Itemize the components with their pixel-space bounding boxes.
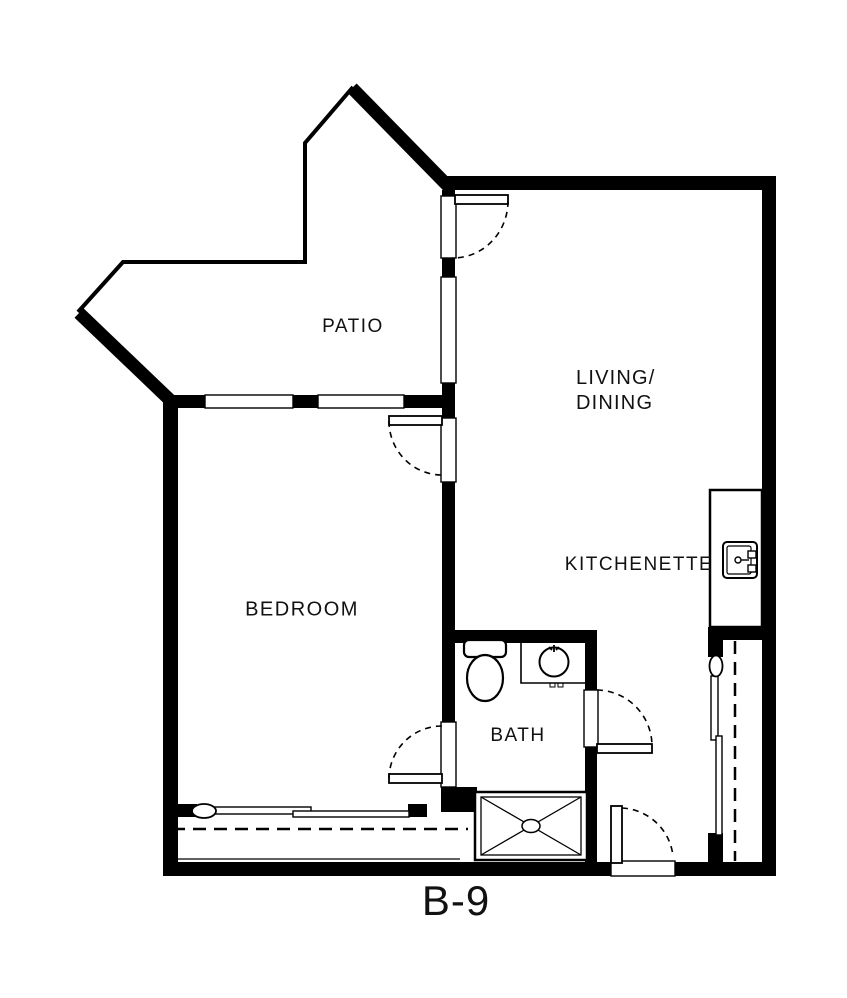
floor-plan: PATIO LIVING/ DINING BEDROOM KITCHENETTE… [0,0,847,998]
door-frame [441,196,456,258]
door-bedroom-bath [389,722,456,787]
door-unit-entry [611,806,675,876]
room-label-bedroom: BEDROOM [245,599,359,622]
wall-slide-block-bottom [708,833,723,862]
toilet-bowl [467,655,503,701]
windows [205,277,456,408]
sliding-handle [710,656,723,677]
wall-corner-block [441,787,477,812]
kitchen-faucet-knob [735,557,741,563]
patio-edge-thin [78,87,353,312]
wall-top [443,176,776,190]
room-label-kitchenette: KITCHENETTE [565,554,713,576]
door-leaf [389,416,442,425]
kitchen-sink-icon [723,542,757,578]
door-bedroom-living [389,416,456,482]
patio-wall-sw-diagonal [79,313,171,401]
wall-bedslide-block-right [408,804,427,817]
unit-label: B-9 [422,877,490,925]
kitchenette-counter [710,490,762,627]
door-bath-hall [584,690,652,753]
door-frame [441,418,456,482]
toilet-icon [464,640,506,701]
door-frame [441,722,456,787]
wall-bottom [163,862,776,876]
door-leaf [611,806,622,863]
door-frame [584,690,598,747]
wall-right [762,176,776,876]
kitchen-faucet-handle [748,565,756,572]
sliding-panel [716,736,722,835]
wall-kitchenette-south [708,627,776,640]
living-west-window [441,277,456,383]
kitchen-faucet-handle [748,551,756,558]
bath-sink-icon [521,643,585,687]
sliding-door-side [710,656,723,836]
sliding-handle [192,804,216,818]
patio-wall-ne-diagonal [352,88,448,186]
door-swing-arc [622,808,673,856]
floor-plan-drawing [0,0,847,998]
room-label-living-dining: LIVING/ DINING [576,366,656,416]
door-swing-arc [452,201,508,258]
patio-window-1 [205,395,293,408]
sliding-panel [711,676,718,740]
shower-icon [475,792,587,860]
door-swing-arc [597,690,652,746]
door-swing-arc [389,421,442,475]
room-label-bath: BATH [490,725,545,747]
patio-outline [78,87,448,401]
walls [163,176,776,876]
door-leaf [455,195,508,204]
sliding-panel [293,811,409,817]
door-swing-arc [389,726,442,779]
room-label-patio: PATIO [322,316,384,338]
wall-slide-block-top [708,640,723,657]
patio-window-2 [318,395,404,408]
shower-drain [522,820,540,833]
door-leaf [597,744,652,753]
sliding-door-bedroom [192,804,409,818]
door-leaf [389,774,442,783]
door-living-entry [441,195,508,258]
